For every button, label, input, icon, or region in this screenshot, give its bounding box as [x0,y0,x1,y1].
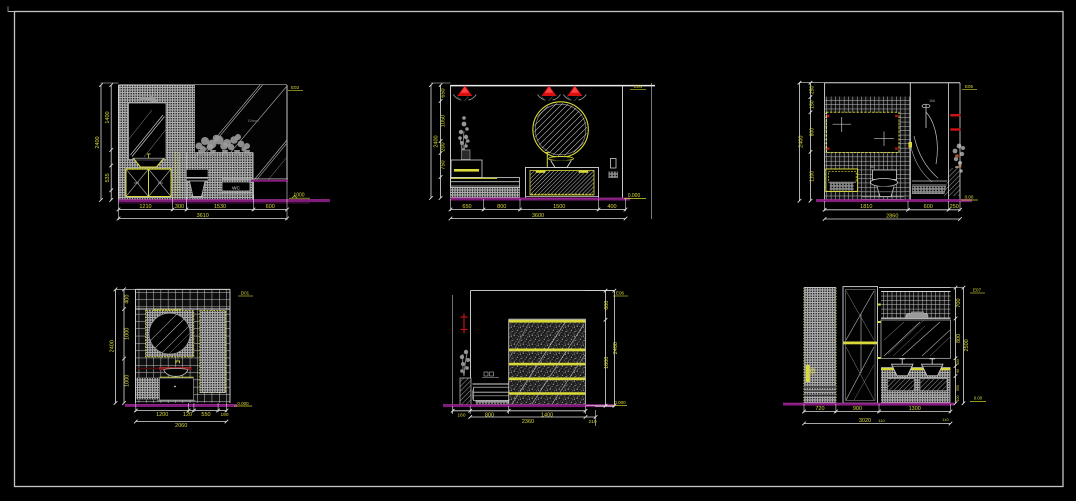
svg-text:1100: 1100 [809,171,815,182]
svg-text:2860: 2860 [886,213,898,219]
svg-text:600: 600 [604,301,610,310]
svg-text:400: 400 [124,295,130,304]
svg-text:210: 210 [588,419,596,425]
svg-text:160: 160 [457,412,465,418]
svg-text:3020: 3020 [859,418,871,424]
svg-text:600: 600 [266,204,275,210]
svg-text:2400: 2400 [613,342,619,354]
svg-text:E03: E03 [291,85,300,90]
svg-text:550: 550 [956,385,960,391]
svg-text:WC: WC [232,185,241,191]
svg-text:▪: ▪ [177,357,178,361]
svg-text:2360: 2360 [522,419,534,425]
svg-text:1210: 1210 [139,204,151,210]
svg-text:200: 200 [440,142,446,151]
svg-text:0.000: 0.000 [237,401,249,406]
svg-text:150: 150 [809,100,815,109]
svg-text:1000: 1000 [124,328,130,340]
svg-text:110: 110 [942,417,949,422]
svg-text:400: 400 [607,204,616,210]
svg-text:720: 720 [815,406,824,412]
svg-text:1810: 1810 [860,204,872,210]
svg-text:800: 800 [809,128,815,137]
svg-text:10#: 10# [929,99,935,103]
svg-text:250: 250 [809,85,815,94]
svg-text:300: 300 [175,204,184,210]
svg-text:10mm: 10mm [247,118,259,123]
svg-text:90: 90 [956,369,960,373]
svg-text:1530: 1530 [214,204,226,210]
svg-text:1000: 1000 [124,375,130,387]
svg-text:750: 750 [440,160,446,169]
svg-text:0.00: 0.00 [965,195,974,200]
svg-text:1400: 1400 [105,111,111,123]
svg-text:650: 650 [440,88,446,97]
svg-text:2400: 2400 [95,136,101,148]
svg-text:900: 900 [853,406,862,412]
svg-text:2500: 2500 [964,339,970,351]
svg-text:9#: 9# [870,165,874,169]
svg-text:2400: 2400 [109,340,115,352]
svg-text:3600: 3600 [532,213,544,219]
svg-text:500: 500 [956,359,960,365]
svg-text:100: 100 [956,396,960,402]
svg-text:120: 120 [183,412,192,418]
svg-text:800: 800 [956,334,962,343]
svg-text:3610: 3610 [197,213,209,219]
svg-text:600: 600 [924,204,933,210]
svg-text:2060: 2060 [175,423,187,429]
svg-text:550: 550 [201,412,210,418]
svg-text:535: 535 [105,173,111,182]
svg-text:1200: 1200 [156,412,168,418]
svg-text:1500: 1500 [553,204,565,210]
svg-text:250: 250 [950,204,959,210]
svg-text:E06: E06 [616,291,625,296]
svg-text:1800: 1800 [604,357,610,369]
svg-text:E05: E05 [965,84,974,89]
svg-text:0.00: 0.00 [974,396,983,401]
svg-text:650: 650 [462,204,471,210]
svg-text:2400: 2400 [433,135,439,147]
svg-text:1300: 1300 [909,406,921,412]
svg-text:700: 700 [956,298,962,307]
svg-text:D01: D01 [241,291,250,296]
svg-text:800: 800 [497,204,506,210]
svg-text:110: 110 [878,418,885,423]
svg-text:E07: E07 [973,288,982,293]
svg-text:E04: E04 [634,84,643,89]
svg-text:0.000: 0.000 [614,400,626,405]
svg-text:2400: 2400 [798,136,804,148]
svg-text:1050: 1050 [440,115,446,127]
svg-text:190: 190 [220,412,228,418]
